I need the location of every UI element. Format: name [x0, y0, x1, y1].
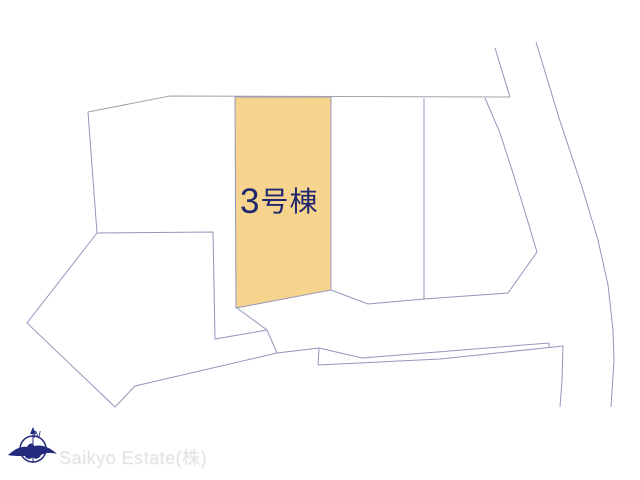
west-lot-left-edge	[88, 112, 97, 233]
compass: N	[6, 420, 64, 476]
site-plan-svg	[0, 0, 640, 480]
compass-north-letter: N	[33, 430, 41, 441]
road-upper-left-edge	[495, 48, 510, 97]
road-right-edge	[536, 42, 614, 407]
lot-label-number: 3	[240, 182, 260, 221]
lot-label: 3号棟	[240, 183, 318, 221]
lot-label-suffix: 号棟	[260, 186, 318, 217]
center-lots-bottom-edge	[331, 252, 537, 304]
road-left-edge	[485, 98, 537, 252]
watermark: Saikyo Estate(株)	[59, 444, 207, 470]
path-top-edge	[319, 343, 549, 358]
path-left-end-join	[318, 348, 319, 365]
path-bottom-edge-and-right-drop	[318, 346, 563, 407]
bird-logo-icon	[8, 443, 57, 458]
site-plan-canvas: 3号棟 N Saikyo Estate(株)	[0, 0, 640, 480]
parcel-divider-from-highlight-corner	[237, 308, 277, 353]
